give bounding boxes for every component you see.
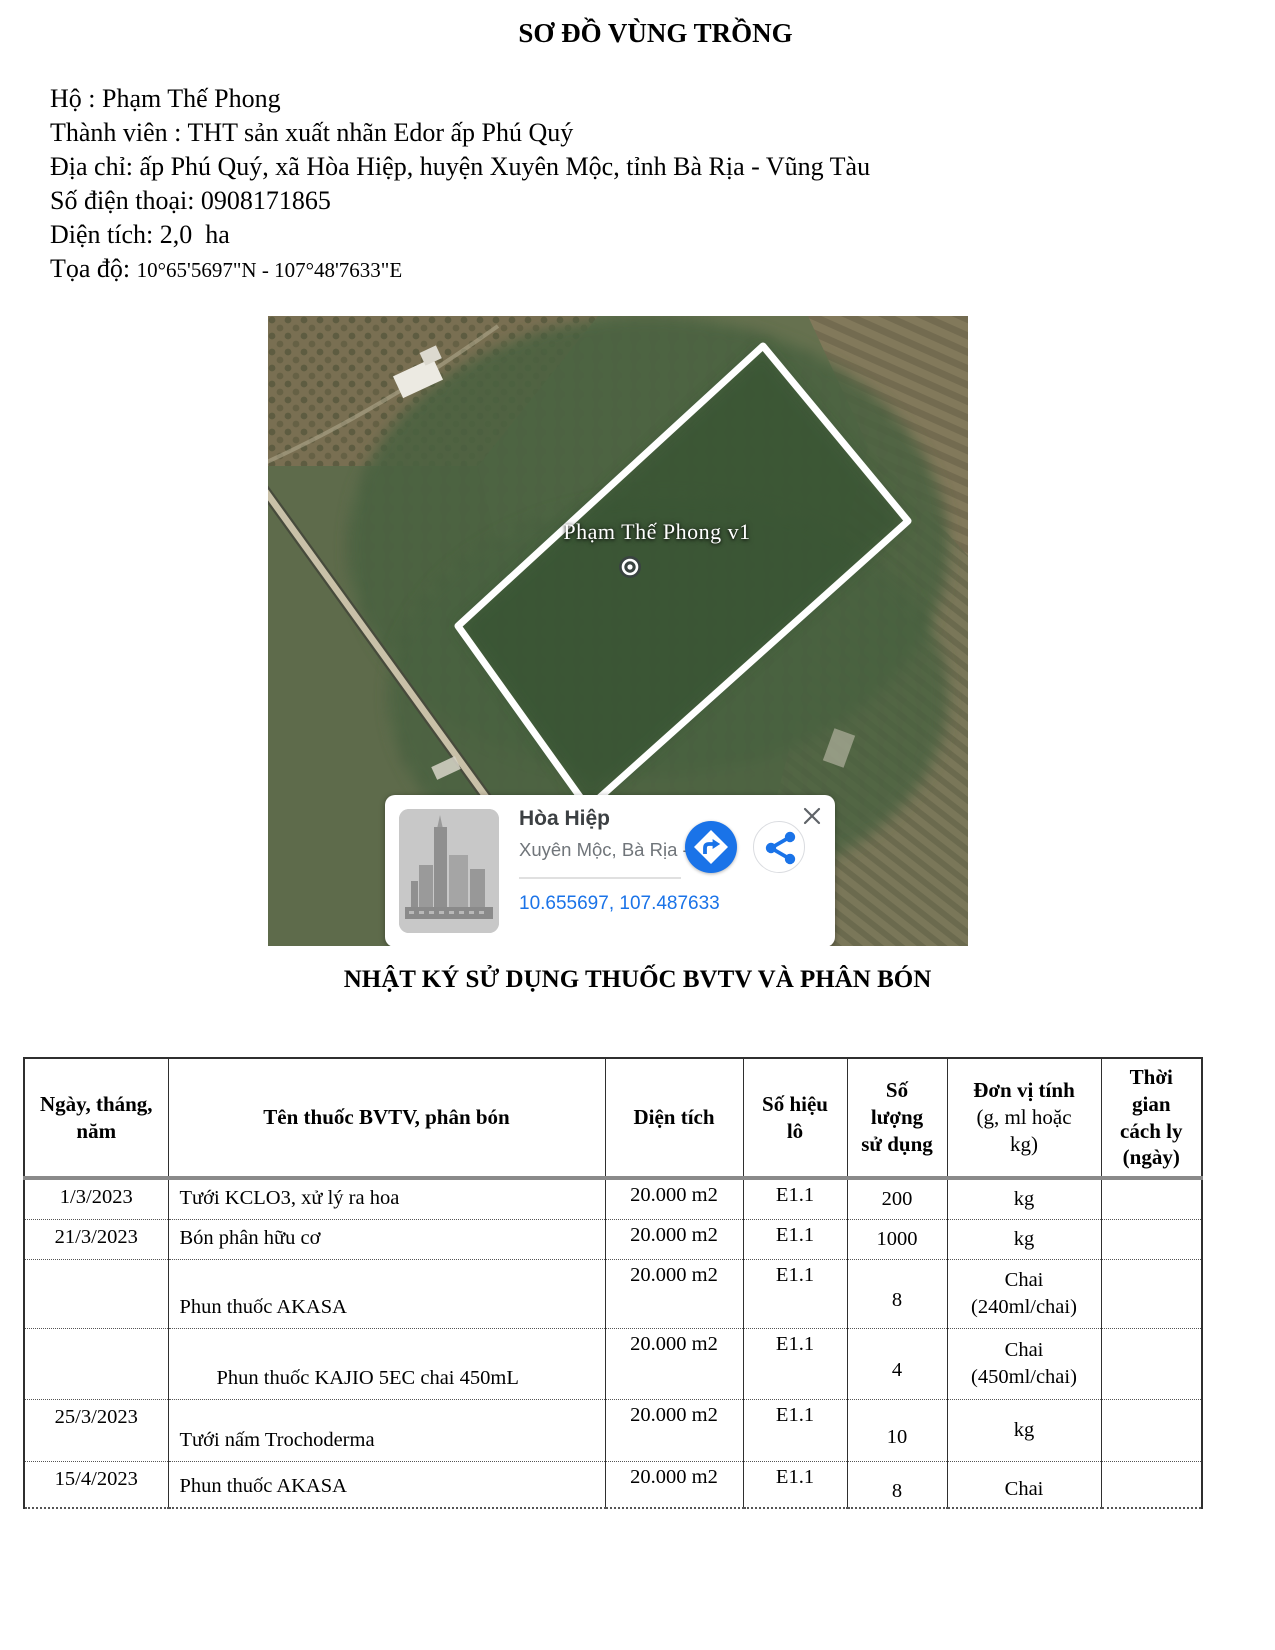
log-cell xyxy=(24,1259,168,1328)
phone-value: Số điện thoại: 0908171865 xyxy=(50,186,331,215)
map-info-card: Hòa Hiệp Xuyên Mộc, Bà Rịa - Vũn... 10.6… xyxy=(385,795,835,946)
log-cell: 20.000 m2 xyxy=(605,1219,743,1259)
household-value: Hộ : Phạm Thế Phong xyxy=(50,84,281,113)
info-line-member: Thành viên : THT sản xuất nhãn Edor ấp P… xyxy=(50,116,870,150)
log-row: 21/3/2023Bón phân hữu cơ20.000 m2E1.1100… xyxy=(24,1219,1202,1259)
directions-button[interactable] xyxy=(685,821,737,873)
log-header-row: Ngày, tháng, nămTên thuốc BVTV, phân bón… xyxy=(24,1058,1202,1178)
directions-icon xyxy=(685,821,737,873)
area-value: Diện tích: 2,0 ha xyxy=(50,220,230,249)
log-cell: E1.1 xyxy=(743,1399,847,1461)
coordinates-label: Tọa độ: xyxy=(50,254,137,283)
log-cell: Phun thuốc AKASA xyxy=(168,1461,605,1508)
log-cell: 4 xyxy=(847,1328,947,1399)
log-cell: 21/3/2023 xyxy=(24,1219,168,1259)
info-line-phone: Số điện thoại: 0908171865 xyxy=(50,184,870,218)
log-cell: 20.000 m2 xyxy=(605,1259,743,1328)
info-line-area: Diện tích: 2,0 ha xyxy=(50,218,870,252)
log-row: Phun thuốc AKASA20.000 m2E1.18Chai (240m… xyxy=(24,1259,1202,1328)
place-title: Hòa Hiệp xyxy=(519,807,610,831)
log-row: 1/3/2023Tưới KCLO3, xử lý ra hoa20.000 m… xyxy=(24,1178,1202,1219)
log-cell: 20.000 m2 xyxy=(605,1328,743,1399)
log-cell: E1.1 xyxy=(743,1219,847,1259)
log-cell: Chai (450ml/chai) xyxy=(947,1328,1101,1399)
log-cell: 15/4/2023 xyxy=(24,1461,168,1508)
log-cell: Chai (240ml/chai) xyxy=(947,1259,1101,1328)
close-icon[interactable] xyxy=(801,805,823,827)
info-block: Hộ : Phạm Thế Phong Thành viên : THT sản… xyxy=(50,82,870,287)
log-cell: E1.1 xyxy=(743,1328,847,1399)
share-button[interactable] xyxy=(753,821,805,873)
log-cell xyxy=(1101,1461,1202,1508)
address-value: Địa chỉ: ấp Phú Quý, xã Hòa Hiệp, huyện … xyxy=(50,152,870,181)
log-col-header: Số hiệu lô xyxy=(743,1058,847,1178)
log-cell xyxy=(1101,1178,1202,1219)
log-cell: 1/3/2023 xyxy=(24,1178,168,1219)
log-row: 25/3/2023Tưới nấm Trochoderma20.000 m2E1… xyxy=(24,1399,1202,1461)
log-cell xyxy=(1101,1399,1202,1461)
log-cell xyxy=(1101,1259,1202,1328)
log-cell: 1000 xyxy=(847,1219,947,1259)
log-cell xyxy=(24,1328,168,1399)
log-cell: E1.1 xyxy=(743,1259,847,1328)
share-icon xyxy=(754,822,806,874)
log-cell xyxy=(1101,1328,1202,1399)
log-col-header: Thời gian cách ly (ngày) xyxy=(1101,1058,1202,1178)
satellite-map: Phạm Thế Phong v1 xyxy=(268,316,968,946)
document-page: SƠ ĐỒ VÙNG TRỒNG Hộ : Phạm Thế Phong Thà… xyxy=(0,0,1275,1650)
log-cell: 20.000 m2 xyxy=(605,1399,743,1461)
info-line-address: Địa chỉ: ấp Phú Quý, xã Hòa Hiệp, huyện … xyxy=(50,150,870,184)
log-cell: 10 xyxy=(847,1399,947,1461)
log-cell: Bón phân hữu cơ xyxy=(168,1219,605,1259)
log-cell: E1.1 xyxy=(743,1461,847,1508)
log-cell: E1.1 xyxy=(743,1178,847,1219)
log-cell: 20.000 m2 xyxy=(605,1461,743,1508)
log-cell: 8 xyxy=(847,1461,947,1508)
place-coordinates[interactable]: 10.655697, 107.487633 xyxy=(519,893,720,915)
log-row: Phun thuốc KAJIO 5EC chai 450mL20.000 m2… xyxy=(24,1328,1202,1399)
log-cell: Tưới nấm Trochoderma xyxy=(168,1399,605,1461)
coordinates-value: 10°65'5697"N - 107°48'7633"E xyxy=(137,258,403,282)
page-title: SƠ ĐỒ VÙNG TRỒNG xyxy=(18,18,1275,49)
log-title: NHẬT KÝ SỬ DỤNG THUỐC BVTV VÀ PHÂN BÓN xyxy=(0,966,1275,994)
log-col-header: Tên thuốc BVTV, phân bón xyxy=(168,1058,605,1178)
place-subtitle: Xuyên Mộc, Bà Rịa - Vũn... xyxy=(519,839,699,861)
log-col-header: Đơn vị tính(g, ml hoặc kg) xyxy=(947,1058,1101,1178)
info-line-household: Hộ : Phạm Thế Phong xyxy=(50,82,870,116)
log-cell: 25/3/2023 xyxy=(24,1399,168,1461)
spray-log-table: Ngày, tháng, nămTên thuốc BVTV, phân bón… xyxy=(23,1057,1203,1509)
log-col-header: Ngày, tháng, năm xyxy=(24,1058,168,1178)
log-cell: 200 xyxy=(847,1178,947,1219)
log-cell: Tưới KCLO3, xử lý ra hoa xyxy=(168,1178,605,1219)
log-cell: kg xyxy=(947,1399,1101,1461)
log-row: 15/4/2023Phun thuốc AKASA20.000 m2E1.18C… xyxy=(24,1461,1202,1508)
info-line-coordinates: Tọa độ: 10°65'5697"N - 107°48'7633"E xyxy=(50,252,870,287)
log-cell: 8 xyxy=(847,1259,947,1328)
place-thumbnail xyxy=(399,809,499,933)
log-cell: Phun thuốc AKASA xyxy=(168,1259,605,1328)
log-cell: Chai xyxy=(947,1461,1101,1508)
log-cell: kg xyxy=(947,1219,1101,1259)
log-cell: kg xyxy=(947,1178,1101,1219)
divider xyxy=(519,877,681,879)
log-col-header: Số lượng sử dụng xyxy=(847,1058,947,1178)
log-col-header: Diện tích xyxy=(605,1058,743,1178)
member-value: Thành viên : THT sản xuất nhãn Edor ấp P… xyxy=(50,118,573,147)
log-cell: 20.000 m2 xyxy=(605,1178,743,1219)
plot-label: Phạm Thế Phong v1 xyxy=(557,519,757,545)
map-pin-icon[interactable] xyxy=(617,554,643,580)
log-cell xyxy=(1101,1219,1202,1259)
log-cell: Phun thuốc KAJIO 5EC chai 450mL xyxy=(168,1328,605,1399)
